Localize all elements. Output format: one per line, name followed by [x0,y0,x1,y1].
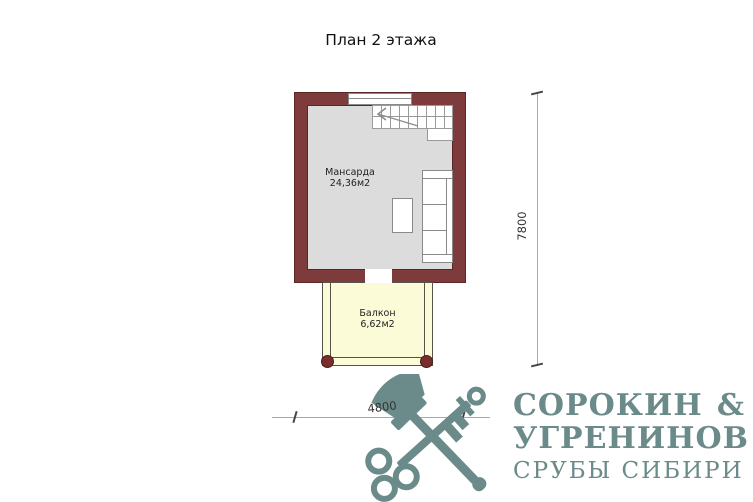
logo-mark [346,374,516,502]
balcony-name: Балкон [334,308,421,319]
balcony-rail-left [330,283,331,365]
stairs-direction-arrow-icon [374,104,424,130]
sofa-armrest-line [423,178,452,179]
balcony-door-opening [365,269,392,283]
dimension-height-label: 7800 [515,206,529,246]
axe-icon [368,374,509,502]
floor-plan-page: План 2 этажа Мансарда 24,36м2 Балкон 6,6… [0,0,753,502]
sofa [422,170,453,263]
sofa-armrest-line [423,254,452,255]
coffee-table [392,198,413,233]
logo-name-line2: УГРЕНИНОВ [513,422,745,456]
sofa-cushion-line [423,204,447,205]
logo-tagline: СРУБЫ СИБИРИ [513,458,745,485]
balcony-post-right [420,355,433,368]
dimension-tick [531,363,543,368]
balcony-rail-bottom [330,357,425,358]
balcony-area: 6,62м2 [334,319,421,330]
room-area: 24,36м2 [307,178,393,189]
room-label: Мансарда 24,36м2 [307,167,393,189]
balcony-rail-right [424,283,425,365]
logo-text: СОРОКИН & УГРЕНИНОВ СРУБЫ СИБИРИ [513,389,745,485]
staircase-landing [427,128,453,141]
sofa-cushion-line [423,230,447,231]
logo-name-line1: СОРОКИН & [513,389,745,422]
logo-ampersand: & [717,389,745,422]
room-name: Мансарда [307,167,393,178]
page-title: План 2 этажа [256,31,506,49]
balcony-label: Балкон 6,62м2 [334,308,421,330]
sofa-back-line [446,178,447,255]
logo-name: СОРОКИН [513,389,703,422]
balcony-post-left [321,355,334,368]
dimension-line-vertical [537,93,538,366]
window-glazing-line [349,98,411,99]
